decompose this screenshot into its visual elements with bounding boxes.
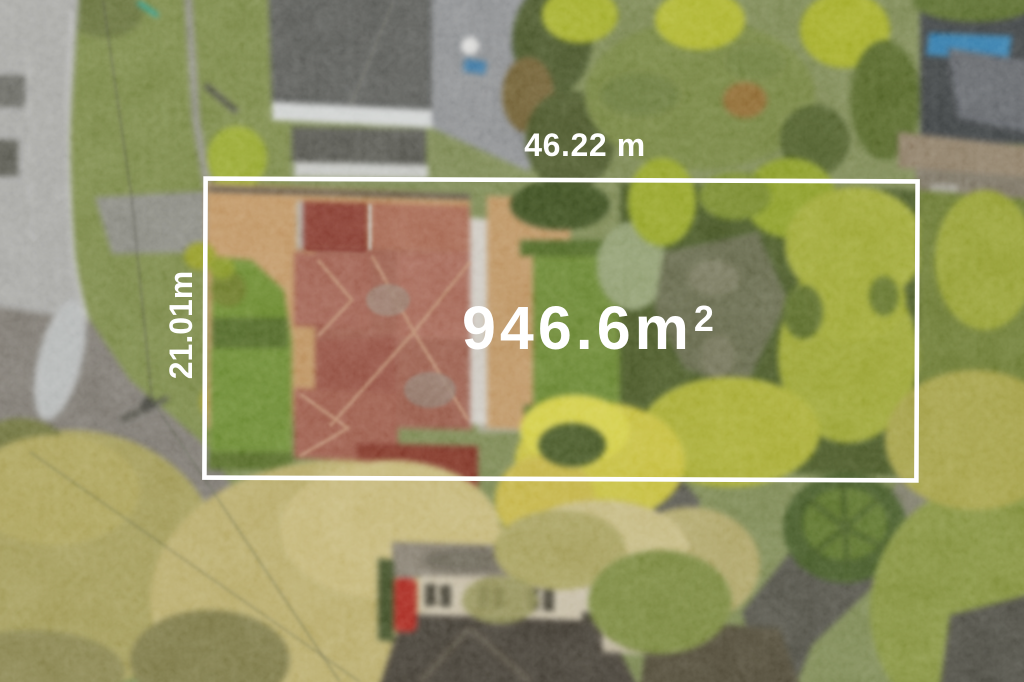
svg-text:21.01m: 21.01m (163, 271, 199, 380)
svg-text:46.22 m: 46.22 m (524, 127, 646, 163)
svg-text:946.6m2: 946.6m2 (462, 294, 718, 362)
